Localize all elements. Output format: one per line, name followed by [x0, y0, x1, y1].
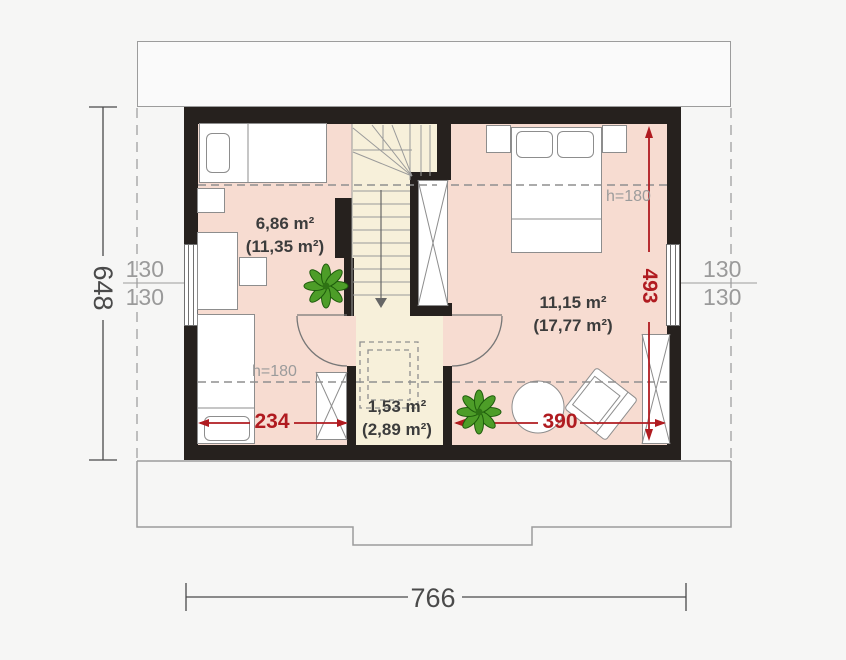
- plan-linework: [0, 0, 846, 660]
- window-left-top-label: 130: [104, 256, 164, 282]
- window-right-bottom-label: 130: [703, 284, 763, 310]
- stairs-direction-arrow: [375, 190, 387, 308]
- hallway-area: 1,53 m²: [327, 395, 467, 418]
- knee-wall-label-right: h=180: [606, 188, 666, 206]
- room-right-area-label: 11,15 m² (17,77 m²): [503, 291, 643, 337]
- dim-493-label: 493: [634, 246, 664, 326]
- room-left-area: 6,86 m²: [215, 212, 355, 235]
- dim-234-arrow-left: [198, 419, 209, 427]
- room-left-area-label: 6,86 m² (11,35 m²): [215, 212, 355, 258]
- hallway-area-gross: (2,89 m²): [327, 418, 467, 441]
- floor-plan-canvas: 6,86 m² (11,35 m²) 11,15 m² (17,77 m²) 1…: [0, 0, 846, 660]
- room-right-area-gross: (17,77 m²): [503, 314, 643, 337]
- room-left-area-gross: (11,35 m²): [215, 235, 355, 258]
- dim-234-label: 234: [247, 410, 297, 434]
- dim-493-arrow-up: [645, 126, 653, 138]
- dim-width-label: 766: [393, 584, 473, 612]
- dim-390-label: 390: [535, 410, 585, 434]
- hallway-area-label: 1,53 m² (2,89 m²): [327, 395, 467, 441]
- window-left-frame: [189, 245, 194, 325]
- door-right-room: [452, 315, 502, 366]
- door-left-room: [297, 315, 347, 366]
- footprint-outline: [137, 461, 731, 545]
- window-left-bottom-label: 130: [104, 284, 164, 310]
- room-right-area: 11,15 m²: [503, 291, 643, 314]
- plant-left-icon: [304, 264, 348, 308]
- dim-493-arrow-down: [645, 429, 653, 441]
- window-right-top-label: 130: [703, 256, 763, 282]
- stairs: [352, 124, 430, 316]
- window-right-frame: [671, 245, 676, 325]
- knee-wall-label-left: h=180: [252, 363, 312, 381]
